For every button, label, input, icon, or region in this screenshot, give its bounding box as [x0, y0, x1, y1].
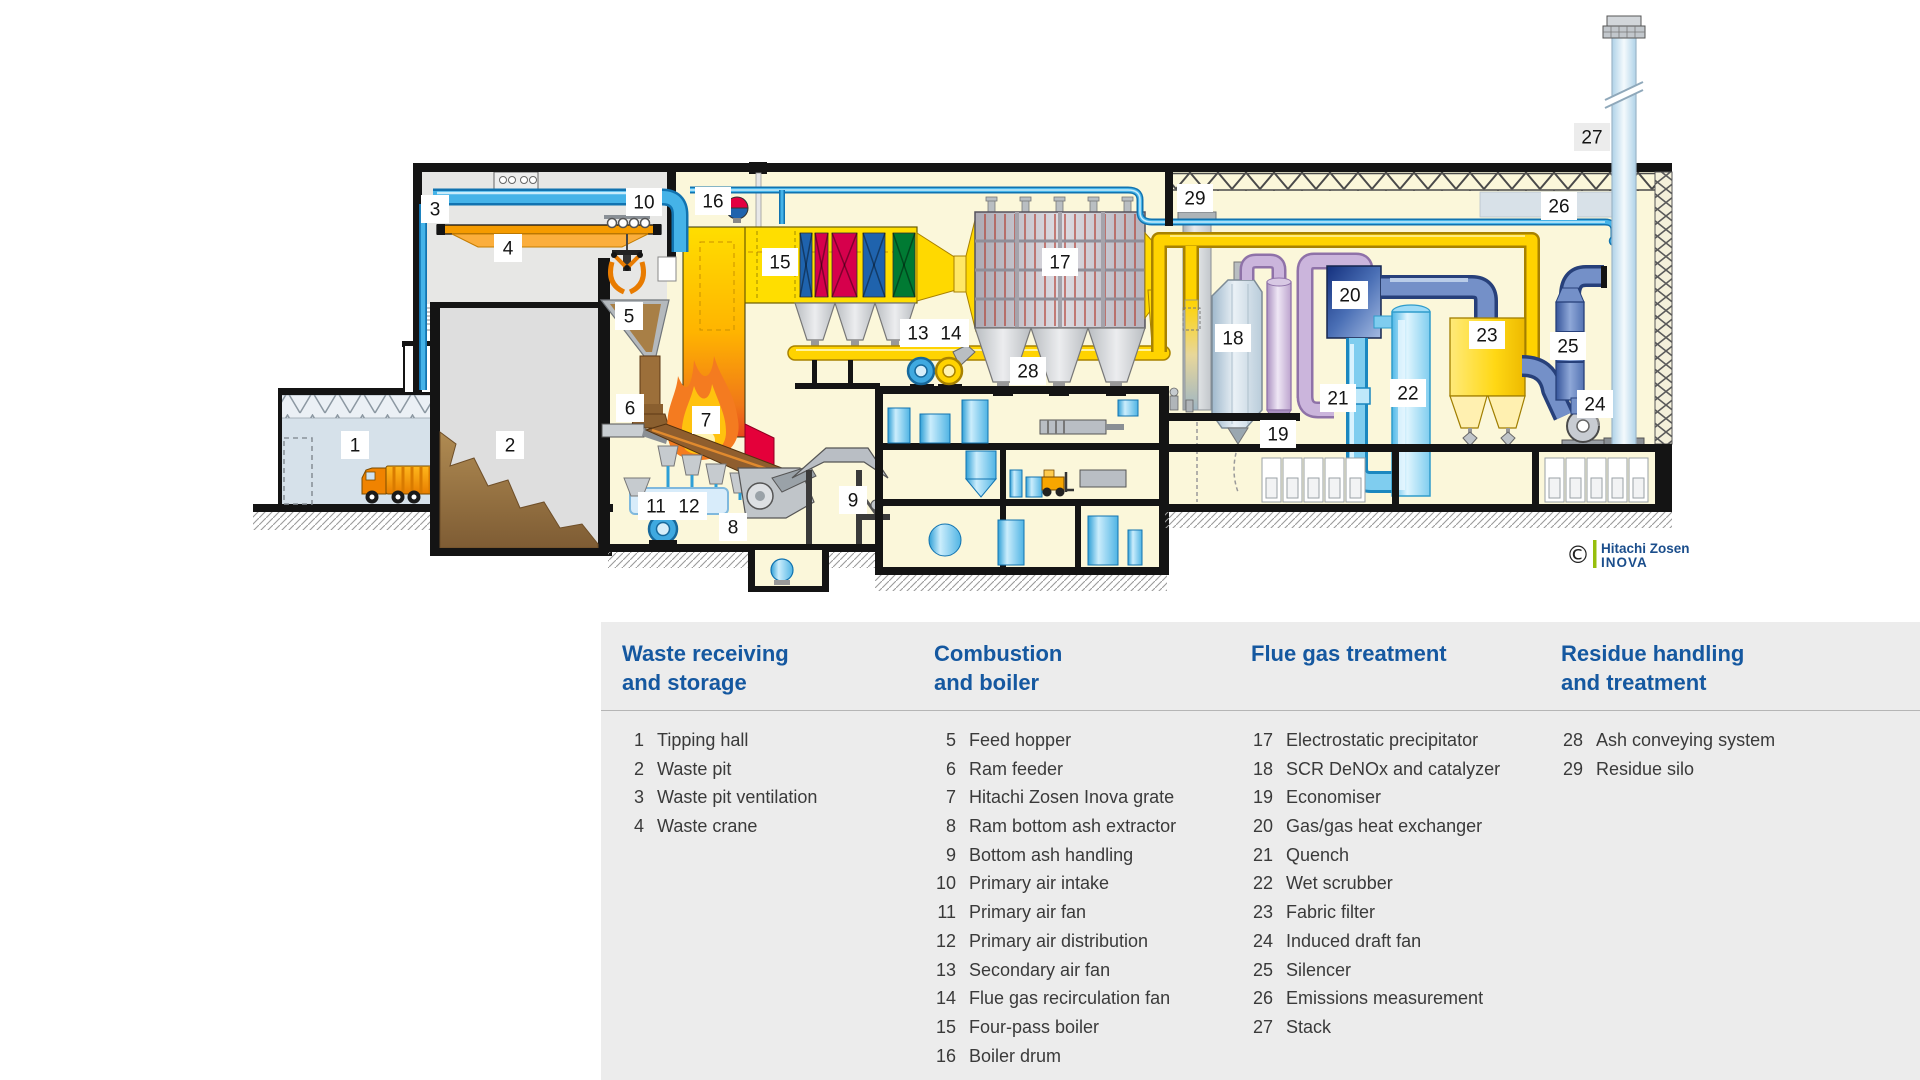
legend-item: 23Fabric filter — [1251, 898, 1500, 927]
legend-item: 26Emissions measurement — [1251, 984, 1500, 1013]
legend-item-label: SCR DeNOx and catalyzer — [1286, 759, 1500, 779]
legend-item-number: 16 — [934, 1042, 956, 1071]
diagram-label-number-16: 16 — [702, 192, 723, 213]
legend-item-label: Waste pit ventilation — [657, 787, 817, 807]
logo-line1: Hitachi Zosen — [1601, 541, 1690, 556]
legend-item-label: Quench — [1286, 845, 1349, 865]
legend-item-label: Ash conveying system — [1596, 730, 1775, 750]
legend-item-number: 3 — [622, 783, 644, 812]
legend-item-label: Primary air fan — [969, 902, 1086, 922]
legend-item-label: Waste crane — [657, 816, 757, 836]
secondary-air-fan — [908, 358, 934, 390]
legend-item-number: 6 — [934, 755, 956, 784]
legend-col-title: Flue gas treatment — [1251, 639, 1551, 668]
legend-item: 27Stack — [1251, 1013, 1500, 1042]
legend-item-label: Wet scrubber — [1286, 873, 1393, 893]
legend-item: 20Gas/gas heat exchanger — [1251, 812, 1500, 841]
legend-item: 16Boiler drum — [934, 1042, 1176, 1071]
diagram-label-number-19: 19 — [1267, 425, 1288, 446]
legend-item-label: Boiler drum — [969, 1046, 1061, 1066]
legend-item: 19Economiser — [1251, 783, 1500, 812]
legend-item-number: 2 — [622, 755, 644, 784]
diagram-label-number-11: 11 — [646, 497, 666, 518]
diagram-label-number-17: 17 — [1049, 253, 1070, 274]
page: © Hitachi Zosen INOVA 123456789101112131… — [0, 0, 1920, 1080]
legend-item-number: 9 — [934, 841, 956, 870]
legend-item-number: 25 — [1251, 956, 1273, 985]
legend-item-label: Ram bottom ash extractor — [969, 816, 1176, 836]
legend-item-number: 15 — [934, 1013, 956, 1042]
legend-item: 21Quench — [1251, 841, 1500, 870]
diagram-label-number-14: 14 — [940, 324, 962, 345]
legend-item-number: 11 — [934, 898, 956, 927]
legend-item-number: 28 — [1561, 726, 1583, 755]
legend-item-label: Bottom ash handling — [969, 845, 1133, 865]
diagram-label-number-10: 10 — [633, 193, 654, 214]
legend-item: 3Waste pit ventilation — [622, 783, 817, 812]
legend-item-label: Gas/gas heat exchanger — [1286, 816, 1482, 836]
legend-item: 17Electrostatic precipitator — [1251, 726, 1500, 755]
diagram-label-number-3: 3 — [430, 200, 441, 221]
legend-col-combustion-and-boiler: Combustionand boiler5Feed hopper6Ram fee… — [934, 622, 1234, 1080]
legend-item-label: Waste pit — [657, 759, 731, 779]
diagram-label-number-8: 8 — [728, 518, 739, 539]
legend-item-label: Electrostatic precipitator — [1286, 730, 1478, 750]
roof-truss-right — [1165, 172, 1655, 191]
legend-item: 7Hitachi Zosen Inova grate — [934, 783, 1176, 812]
diagram-label-number-24: 24 — [1584, 395, 1606, 416]
plant-cross-section-illustration: © Hitachi Zosen INOVA 123456789101112131… — [0, 0, 1920, 622]
legend-col-title: Residue handlingand treatment — [1561, 639, 1861, 697]
legend-item-number: 19 — [1251, 783, 1273, 812]
legend-item-label: Economiser — [1286, 787, 1381, 807]
diagram-label-number-28: 28 — [1017, 362, 1038, 383]
legend-item-label: Secondary air fan — [969, 960, 1110, 980]
waste-pit — [430, 258, 612, 556]
legend-item-label: Residue silo — [1596, 759, 1694, 779]
legend-item-label: Emissions measurement — [1286, 988, 1483, 1008]
legend-item-number: 23 — [1251, 898, 1273, 927]
residue-conveyor — [1080, 470, 1126, 487]
esp-hoppers — [975, 328, 1145, 390]
diagram-label-number-20: 20 — [1339, 286, 1360, 307]
legend-item: 11Primary air fan — [934, 898, 1176, 927]
diagram-label-number-5: 5 — [624, 307, 635, 328]
logo-green-bar — [1593, 540, 1597, 568]
diagram-label-number-22: 22 — [1397, 384, 1418, 405]
legend-item: 28Ash conveying system — [1561, 726, 1775, 755]
diagram-label-number-26: 26 — [1548, 197, 1569, 218]
legend-item-label: Hitachi Zosen Inova grate — [969, 787, 1174, 807]
legend-item-list: 28Ash conveying system29Residue silo — [1561, 726, 1775, 783]
legend-item-number: 29 — [1561, 755, 1583, 784]
diagram-label-number-12: 12 — [678, 497, 699, 518]
legend-item-list: 5Feed hopper6Ram feeder7Hitachi Zosen In… — [934, 726, 1176, 1070]
legend-item-number: 17 — [1251, 726, 1273, 755]
legend-item-number: 18 — [1251, 755, 1273, 784]
legend-item: 6Ram feeder — [934, 755, 1176, 784]
legend-item: 13Secondary air fan — [934, 956, 1176, 985]
legend-item: 12Primary air distribution — [934, 927, 1176, 956]
legend-item-label: Primary air distribution — [969, 931, 1148, 951]
legend-item-list: 17Electrostatic precipitator18SCR DeNOx … — [1251, 726, 1500, 1042]
legend-item-label: Stack — [1286, 1017, 1331, 1037]
diagram-label-number-29: 29 — [1184, 189, 1205, 210]
logo-line2: INOVA — [1601, 555, 1648, 570]
roof-truss-left — [281, 395, 433, 418]
legend-item-number: 24 — [1251, 927, 1273, 956]
boiler-hoppers — [795, 303, 915, 346]
legend-item: 22Wet scrubber — [1251, 869, 1500, 898]
legend-item-label: Primary air intake — [969, 873, 1109, 893]
legend-item-number: 13 — [934, 956, 956, 985]
legend-item-number: 14 — [934, 984, 956, 1013]
diagram-label-number-18: 18 — [1222, 329, 1243, 350]
legend-item-number: 27 — [1251, 1013, 1273, 1042]
legend-item: 4Waste crane — [622, 812, 817, 841]
legend-item-number: 12 — [934, 927, 956, 956]
legend-item-number: 10 — [934, 869, 956, 898]
legend-item-label: Flue gas recirculation fan — [969, 988, 1170, 1008]
diagram-label-number-6: 6 — [625, 399, 636, 420]
legend-item-number: 4 — [622, 812, 644, 841]
legend-item-number: 5 — [934, 726, 956, 755]
legend-item: 29Residue silo — [1561, 755, 1775, 784]
legend-item-label: Tipping hall — [657, 730, 748, 750]
diagram-label-number-23: 23 — [1476, 326, 1497, 347]
legend-col-title: Combustionand boiler — [934, 639, 1234, 697]
legend-item-label: Feed hopper — [969, 730, 1071, 750]
legend-item-label: Ram feeder — [969, 759, 1063, 779]
diagram-label-number-21: 21 — [1327, 389, 1348, 410]
legend-item: 5Feed hopper — [934, 726, 1176, 755]
legend-item-number: 21 — [1251, 841, 1273, 870]
legend-item: 1Tipping hall — [622, 726, 817, 755]
diagram-label-number-4: 4 — [503, 239, 514, 260]
legend-item: 2Waste pit — [622, 755, 817, 784]
legend-item: 9Bottom ash handling — [934, 841, 1176, 870]
diagram-label-number-15: 15 — [769, 253, 790, 274]
legend-item: 24Induced draft fan — [1251, 927, 1500, 956]
diagram-label-number-13: 13 — [907, 324, 928, 345]
legend-col-title: Waste receivingand storage — [622, 639, 922, 697]
legend-item-number: 7 — [934, 783, 956, 812]
legend-col-flue-gas-treatment: Flue gas treatment17Electrostatic precip… — [1251, 622, 1551, 1080]
diagram-label-number-7: 7 — [701, 411, 712, 432]
copyright-symbol: © — [1566, 541, 1590, 569]
legend-item: 18SCR DeNOx and catalyzer — [1251, 755, 1500, 784]
legend-item-label: Four-pass boiler — [969, 1017, 1099, 1037]
legend-item: 25Silencer — [1251, 956, 1500, 985]
diagram-label-number-27: 27 — [1581, 128, 1602, 149]
diagram-label-number-1: 1 — [350, 436, 361, 457]
legend-item-label: Induced draft fan — [1286, 931, 1421, 951]
legend-item-number: 26 — [1251, 984, 1273, 1013]
diagram-label-number-25: 25 — [1557, 337, 1578, 358]
legend-col-residue-handling-and-treatment: Residue handlingand treatment28Ash conve… — [1561, 622, 1861, 1080]
legend-item: 14Flue gas recirculation fan — [934, 984, 1176, 1013]
diagram-label-number-9: 9 — [848, 491, 859, 512]
legend-item-label: Fabric filter — [1286, 902, 1375, 922]
legend-item-number: 20 — [1251, 812, 1273, 841]
legend-item: 10Primary air intake — [934, 869, 1176, 898]
legend-item: 15Four-pass boiler — [934, 1013, 1176, 1042]
legend-item-list: 1Tipping hall2Waste pit3Waste pit ventil… — [622, 726, 817, 841]
legend-item: 8Ram bottom ash extractor — [934, 812, 1176, 841]
legend-item-number: 8 — [934, 812, 956, 841]
diagram-label-number-2: 2 — [505, 436, 516, 457]
legend-col-waste-receiving-and-storage: Waste receivingand storage1Tipping hall2… — [622, 622, 922, 1080]
lattice-wall — [1655, 172, 1672, 444]
legend-item-number: 22 — [1251, 869, 1273, 898]
legend-item-label: Silencer — [1286, 960, 1351, 980]
legend-panel: Waste receivingand storage1Tipping hall2… — [601, 622, 1920, 1080]
legend-item-number: 1 — [622, 726, 644, 755]
